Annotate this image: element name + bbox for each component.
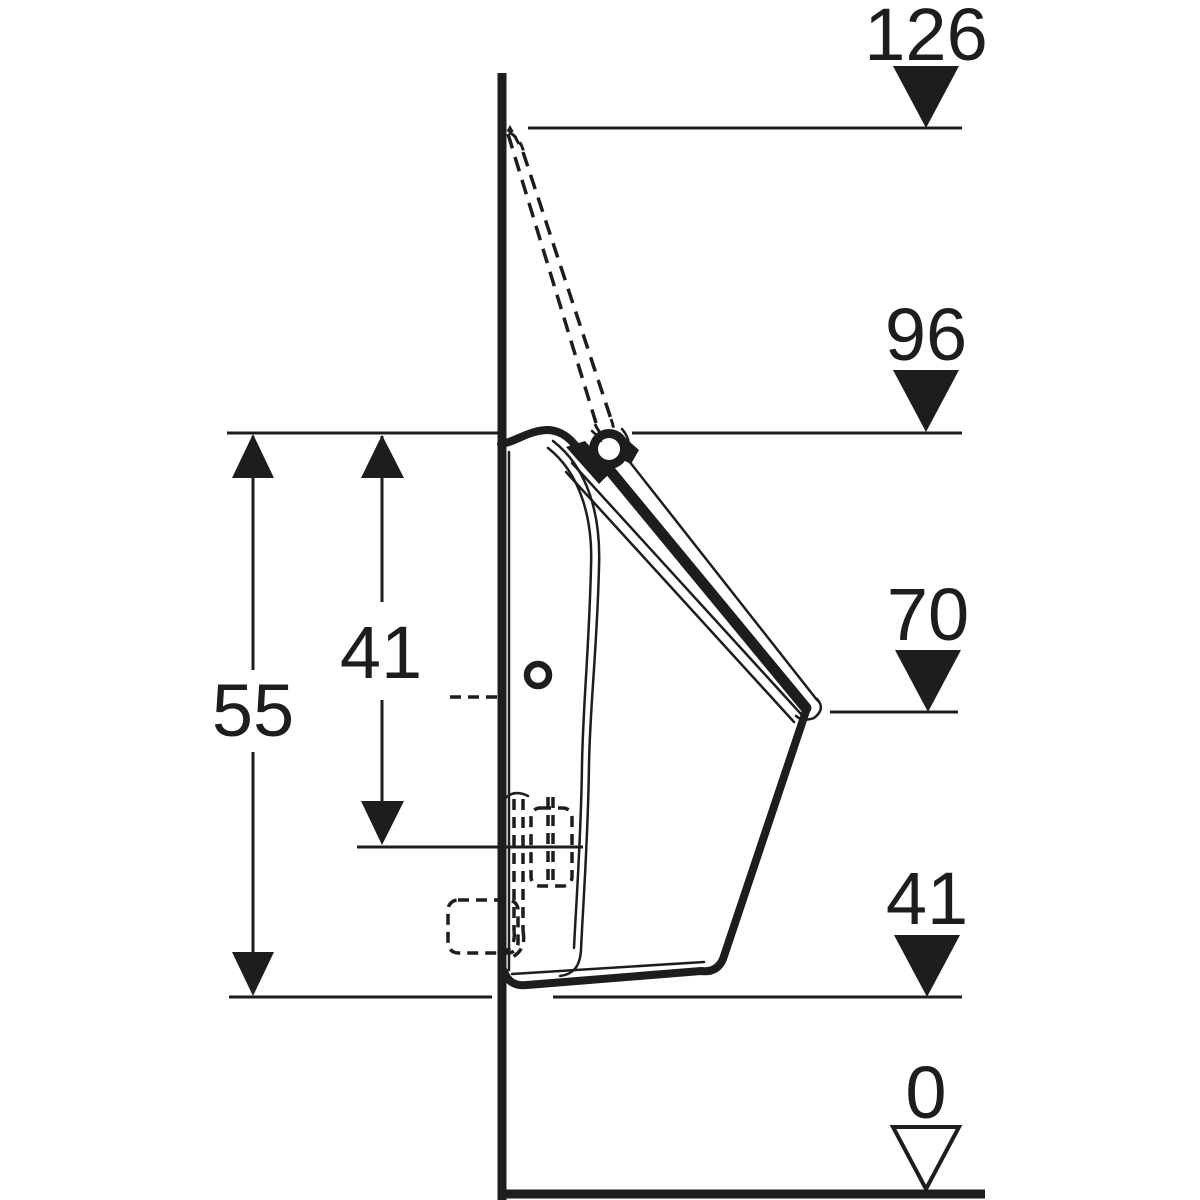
height-label-0: 0: [905, 1051, 946, 1134]
height-mark-126: 126: [528, 0, 988, 128]
down-arrow-41: [361, 801, 404, 845]
span-dimension-55: 55: [212, 434, 294, 996]
up-arrow-55: [232, 434, 274, 478]
urinal-side-elevation-drawing: 126 96 70 41 0 55 41: [0, 0, 1200, 1200]
span-label-41: 41: [340, 611, 422, 694]
technical-drawing-canvas: 126 96 70 41 0 55 41: [0, 0, 1200, 1200]
down-triangle-marker-70: [895, 650, 961, 712]
span-label-55: 55: [212, 669, 294, 752]
height-label-70: 70: [887, 573, 969, 656]
open-cover-dashed-outline: [501, 128, 629, 444]
down-arrow-55: [232, 952, 274, 996]
height-label-126: 126: [864, 0, 987, 76]
height-label-41: 41: [886, 857, 968, 940]
height-mark-96: 96: [227, 293, 967, 433]
down-triangle-marker-96: [893, 370, 959, 432]
open-triangle-marker-0: [893, 1127, 959, 1189]
cover-top-edge: [629, 461, 817, 700]
cover-under-edge-1: [572, 463, 801, 714]
height-label-96: 96: [885, 293, 967, 376]
height-mark-0: 0: [893, 1051, 959, 1189]
mounting-hole: [527, 664, 549, 686]
cover-closed-band: [607, 467, 806, 708]
down-triangle-marker-41: [894, 935, 960, 997]
height-mark-70: 70: [830, 573, 969, 712]
up-arrow-41: [361, 435, 404, 478]
span-dimension-41: 41: [340, 435, 583, 847]
open-cover-right-edge: [523, 152, 611, 419]
cover-under-edge-2: [566, 472, 794, 722]
wall-outlet-box-hidden: [448, 900, 518, 953]
open-cover-left-edge: [508, 134, 596, 423]
